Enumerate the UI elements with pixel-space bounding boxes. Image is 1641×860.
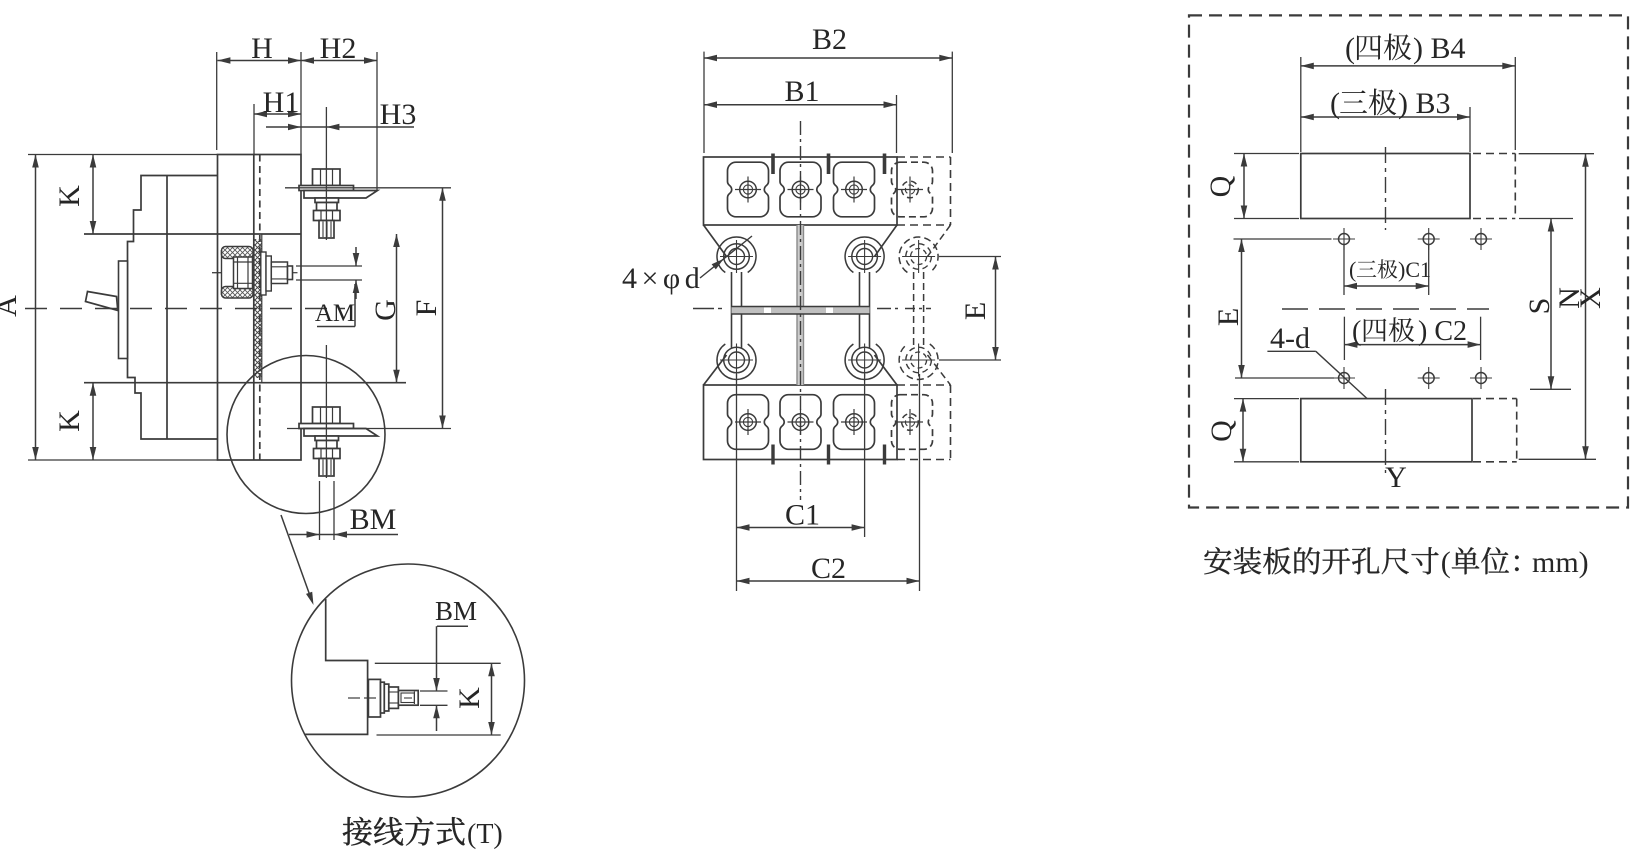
svg-text:4×φd: 4×φd <box>622 262 704 295</box>
svg-text:) B3: ) B3 <box>1398 87 1451 120</box>
svg-text:) C2: ) C2 <box>1418 316 1467 347</box>
svg-text:F: F <box>410 300 443 317</box>
svg-text:mm): mm) <box>1532 546 1589 579</box>
svg-text:H2: H2 <box>320 32 357 65</box>
svg-text:K: K <box>53 410 86 432</box>
svg-text:4-d: 4-d <box>1270 322 1310 355</box>
svg-text:)C1: )C1 <box>1398 257 1431 282</box>
svg-text:(: ( <box>1352 316 1361 347</box>
svg-text:(: ( <box>1349 257 1356 282</box>
svg-text:H3: H3 <box>380 98 417 131</box>
svg-text:) B4: ) B4 <box>1413 32 1466 65</box>
svg-text:K: K <box>453 687 486 709</box>
svg-text:H: H <box>251 32 273 65</box>
svg-text:BM: BM <box>435 596 477 626</box>
svg-text:BM: BM <box>350 503 397 536</box>
svg-text:(T): (T) <box>467 819 503 850</box>
svg-text:(: ( <box>1441 546 1451 579</box>
svg-text:X: X <box>1574 287 1607 309</box>
svg-text:H1: H1 <box>263 86 300 119</box>
svg-text:Q: Q <box>1205 420 1238 442</box>
svg-text:E: E <box>959 302 992 320</box>
svg-text:G: G <box>369 299 402 321</box>
svg-text:AM: AM <box>315 300 355 327</box>
svg-text:(: ( <box>1330 87 1340 120</box>
svg-text:C1: C1 <box>785 499 820 532</box>
svg-text:K: K <box>53 185 86 207</box>
svg-text:Y: Y <box>1385 461 1407 494</box>
svg-text:B1: B1 <box>784 75 819 108</box>
svg-text:E: E <box>1212 308 1245 326</box>
svg-text:C2: C2 <box>811 552 846 585</box>
svg-text:Q: Q <box>1204 175 1237 197</box>
svg-text:B2: B2 <box>812 23 847 56</box>
svg-text:(: ( <box>1345 32 1355 65</box>
svg-text:A: A <box>0 295 23 317</box>
svg-text:S: S <box>1523 298 1556 315</box>
